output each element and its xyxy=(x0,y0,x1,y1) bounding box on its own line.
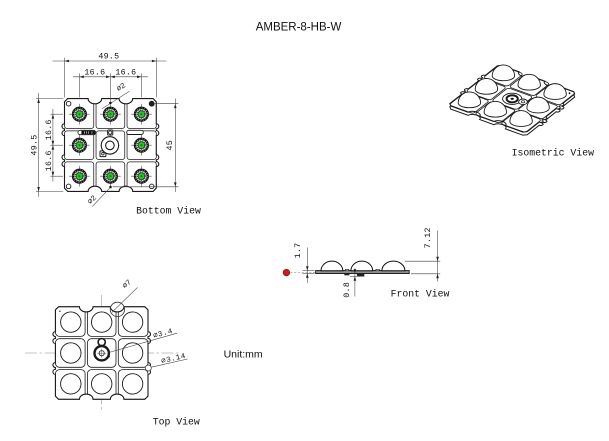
svg-text:Bottom View: Bottom View xyxy=(136,206,201,217)
svg-text:16.6: 16.6 xyxy=(84,69,105,78)
svg-text:Isometric View: Isometric View xyxy=(512,147,594,158)
svg-text:49.5: 49.5 xyxy=(98,53,119,62)
svg-text:AMBER-8-HB-W: AMBER-8-HB-W xyxy=(256,22,342,34)
svg-text:16.6: 16.6 xyxy=(115,69,136,78)
svg-text:⌀3.4: ⌀3.4 xyxy=(153,328,174,341)
svg-text:7.12: 7.12 xyxy=(424,227,433,248)
svg-text:45: 45 xyxy=(166,140,175,151)
svg-text:16.6: 16.6 xyxy=(45,119,54,140)
svg-text:1.7: 1.7 xyxy=(294,243,303,259)
svg-text:16.6: 16.6 xyxy=(45,150,54,171)
svg-text:⌀2: ⌀2 xyxy=(87,194,99,206)
svg-text:Top View: Top View xyxy=(153,416,200,427)
svg-text:⌀7: ⌀7 xyxy=(122,279,134,291)
svg-text:Unit:mm: Unit:mm xyxy=(224,348,263,360)
svg-text:Front View: Front View xyxy=(391,289,450,300)
svg-text:⌀2: ⌀2 xyxy=(116,82,128,94)
svg-text:49.5: 49.5 xyxy=(30,134,39,155)
svg-text:0.8: 0.8 xyxy=(343,282,352,298)
svg-text:⌀3.14: ⌀3.14 xyxy=(161,353,187,366)
